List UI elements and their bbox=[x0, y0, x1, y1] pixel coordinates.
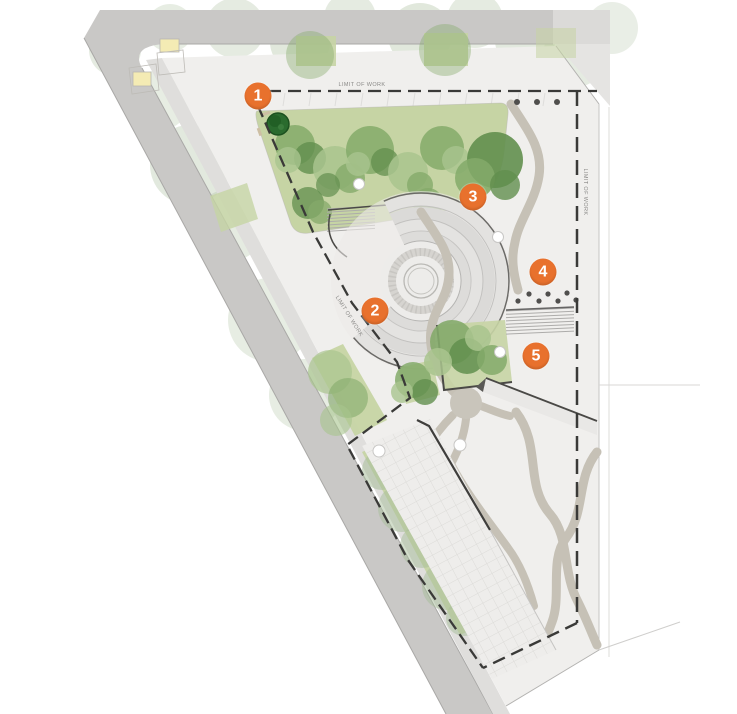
limit-of-work-label-top: LIMIT OF WORK bbox=[339, 82, 386, 88]
plan-marker-number: 5 bbox=[532, 348, 541, 364]
site-plan-canvas: LIMIT OF WORK LIMIT OF WORK LIMIT OF WOR… bbox=[0, 0, 737, 714]
plaza-node bbox=[450, 387, 482, 419]
plan-marker[interactable]: 1 bbox=[245, 83, 272, 110]
plan-marker[interactable]: 3 bbox=[460, 184, 487, 211]
plan-marker[interactable]: 5 bbox=[523, 343, 550, 370]
plan-marker-number: 4 bbox=[539, 264, 548, 280]
plan-marker-number: 3 bbox=[469, 189, 478, 205]
plan-marker[interactable]: 2 bbox=[362, 298, 389, 325]
plan-marker-number: 2 bbox=[371, 303, 380, 319]
plan-marker-number: 1 bbox=[254, 88, 263, 104]
landscape-site-plan: LIMIT OF WORK LIMIT OF WORK LIMIT OF WOR… bbox=[0, 0, 737, 714]
plan-marker[interactable]: 4 bbox=[530, 259, 557, 286]
limit-of-work-label-east: LIMIT OF WORK bbox=[582, 169, 588, 216]
